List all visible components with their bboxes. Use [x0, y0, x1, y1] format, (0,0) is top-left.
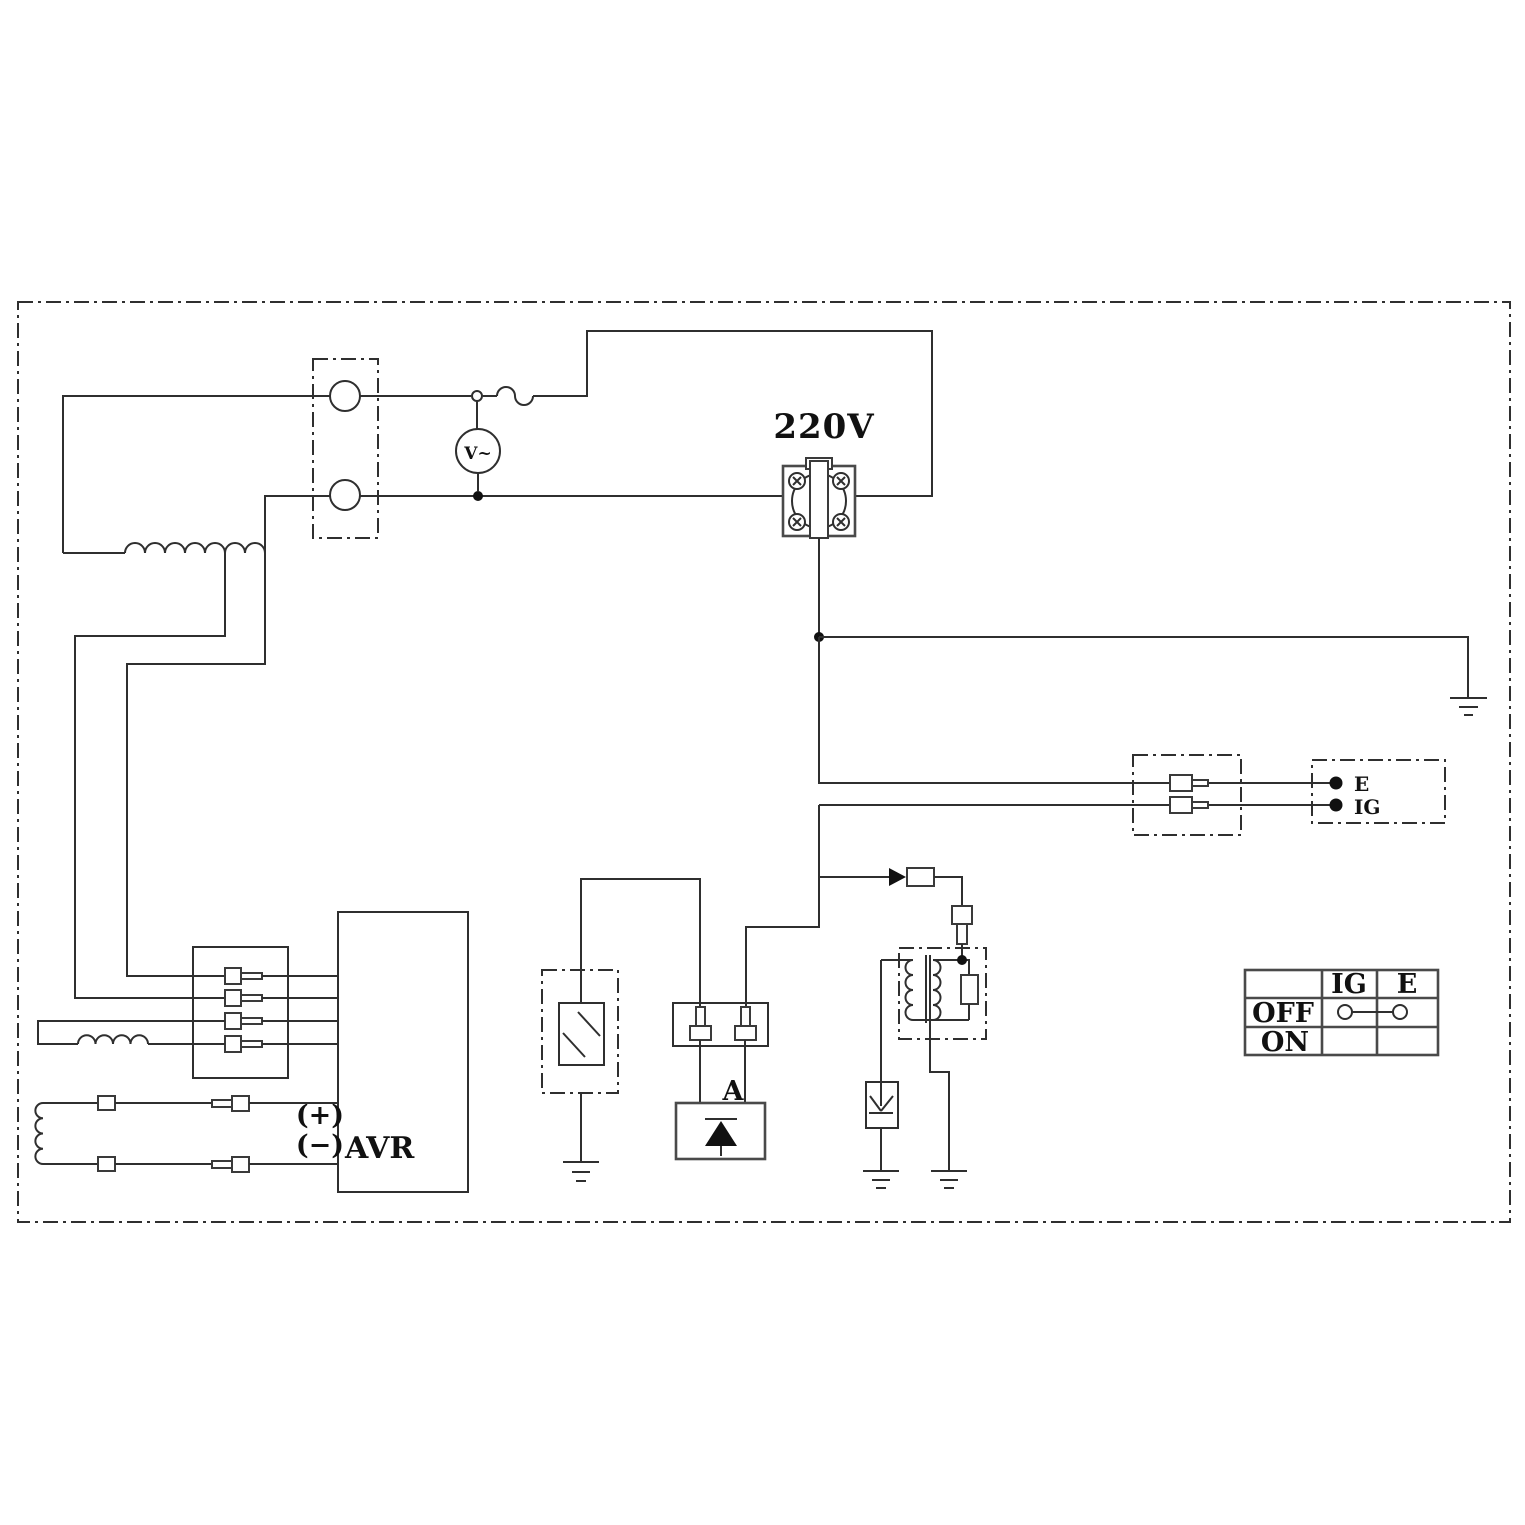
- stator-main-winding: [63, 396, 330, 998]
- frame-border: [18, 302, 1510, 1222]
- breaker-terminal-bottom: [330, 480, 360, 510]
- connector-pin: [98, 1157, 115, 1171]
- connector-pin: [735, 1026, 756, 1040]
- breaker-terminal-block: [313, 359, 378, 538]
- resistor-inline: [907, 868, 934, 886]
- avr-minus-label: (−): [296, 1130, 344, 1161]
- ground-icon: [931, 1171, 967, 1188]
- schematic-canvas: V~ 220V: [0, 0, 1525, 1525]
- spark-plug: [866, 960, 898, 1171]
- voltmeter: V~: [456, 401, 500, 501]
- table-header-ig: IG: [1331, 969, 1367, 1000]
- ground-bus-wire: [814, 538, 1468, 698]
- breaker-terminal-top: [330, 381, 360, 411]
- primary-winding: [906, 960, 914, 1020]
- ground-icon: [563, 1162, 599, 1181]
- terminal-ig-dot: [1330, 799, 1343, 812]
- exciter-winding: [38, 1021, 225, 1044]
- ground-icon: [863, 1171, 899, 1188]
- stop-wire-e: [819, 637, 1330, 783]
- connector-pin: [232, 1096, 249, 1111]
- table-row-on: ON: [1261, 1027, 1309, 1058]
- switch-position-table: IG E OFF ON: [1245, 969, 1438, 1058]
- resistor-icon: [961, 975, 978, 1004]
- ground-icon: [1450, 698, 1487, 715]
- avr-label: AVR: [344, 1131, 415, 1166]
- dc-winding: [35, 1096, 338, 1172]
- connector-pin: [952, 906, 972, 924]
- secondary-winding: [933, 960, 941, 1020]
- stop-wire-ig: [746, 805, 1330, 1007]
- engine-stop-switch-box: E IG: [1312, 760, 1445, 823]
- connector-pin: [98, 1096, 115, 1110]
- ignition-feed: [889, 868, 972, 959]
- sensor-connector-2pin: [673, 1003, 768, 1103]
- fuse-icon: [497, 387, 533, 405]
- table-row-off: OFF: [1252, 998, 1314, 1029]
- core-icon: [926, 955, 930, 1023]
- avr-plus-label: (+): [296, 1100, 344, 1131]
- outlet-voltage-label: 220V: [773, 407, 874, 447]
- ignition-coil: [881, 948, 986, 1171]
- outlet-220v: 220V: [773, 407, 874, 538]
- table-header-e: E: [1397, 969, 1418, 1000]
- connector-pin: [1170, 797, 1192, 813]
- terminal-e-label: E: [1354, 772, 1369, 796]
- voltmeter-label: V~: [463, 444, 491, 464]
- avr-connector-4pin: [193, 947, 338, 1078]
- connector-pin: [1170, 775, 1192, 791]
- avr-box: AVR: [338, 912, 468, 1192]
- terminal-ig-label: IG: [1354, 795, 1380, 819]
- junction-dot: [957, 955, 967, 965]
- engine-stop-connector: [1133, 755, 1241, 835]
- switch-connection-icon: [1338, 1005, 1407, 1019]
- rectifier-unit-a: A: [676, 1076, 765, 1159]
- diode-icon: [705, 1121, 737, 1146]
- fuse-junction: [472, 391, 482, 401]
- diode-icon: [889, 868, 906, 886]
- junction-dot: [473, 491, 483, 501]
- connector-pin: [232, 1157, 249, 1172]
- connector-pin: [225, 968, 262, 1052]
- connector-pin: [690, 1026, 711, 1040]
- terminal-e-dot: [1330, 777, 1343, 790]
